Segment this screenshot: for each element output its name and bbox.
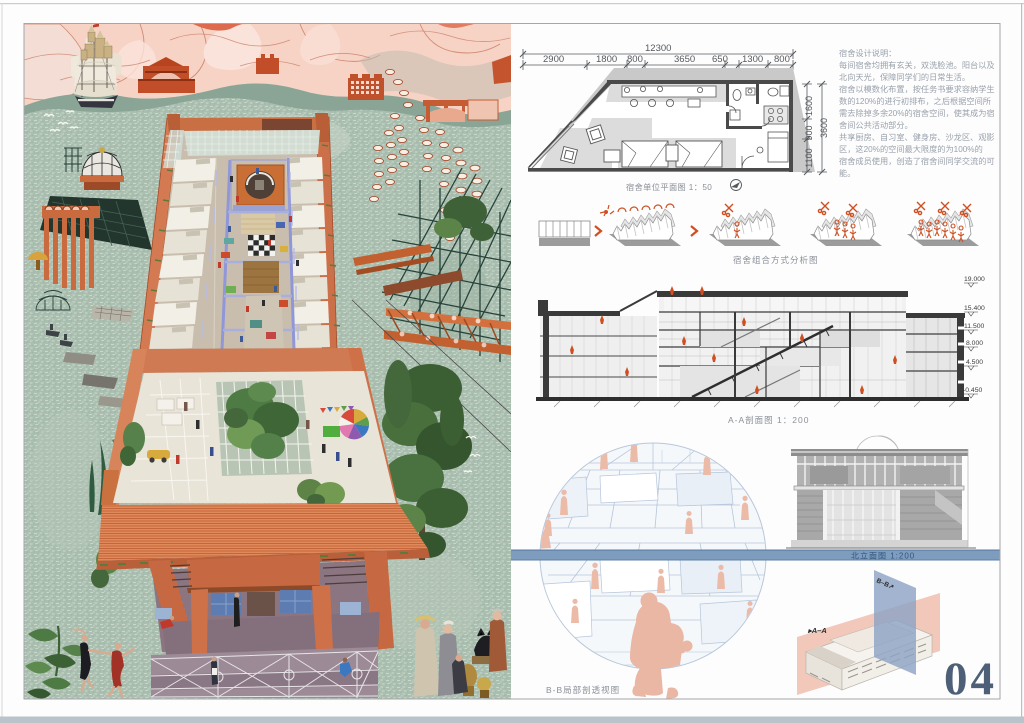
svg-text:▸A–A: ▸A–A (807, 626, 827, 635)
svg-text:19.000: 19.000 (964, 276, 985, 283)
svg-text:12300: 12300 (645, 43, 671, 54)
svg-text:1300: 1300 (742, 54, 763, 65)
svg-text:650: 650 (712, 54, 728, 65)
svg-text:能。: 能。 (839, 168, 855, 178)
svg-text:4.500: 4.500 (966, 359, 983, 366)
svg-text:-0.450: -0.450 (963, 387, 982, 394)
svg-text:宿舍设计说明：: 宿舍设计说明： (839, 48, 896, 58)
svg-text:舍间公共活动部分。: 舍间公共活动部分。 (839, 120, 913, 130)
svg-text:数的120%的进行初排布，之后根据空间所: 数的120%的进行初排布，之后根据空间所 (839, 96, 991, 106)
svg-text:北立面图 1:200: 北立面图 1:200 (851, 551, 915, 561)
svg-text:800: 800 (627, 54, 643, 65)
svg-text:900: 900 (804, 125, 814, 140)
svg-text:3650: 3650 (674, 54, 695, 65)
svg-text:宿舍以模数化布置，按任务书要求容纳学生: 宿舍以模数化布置，按任务书要求容纳学生 (839, 84, 995, 94)
svg-text:15.400: 15.400 (964, 305, 985, 312)
svg-text:1100: 1100 (804, 148, 814, 167)
svg-text:3600: 3600 (819, 118, 829, 138)
svg-text:8.000: 8.000 (966, 340, 983, 347)
svg-text:每间宿舍均拥有玄关，双洗脸池。阳台以及: 每间宿舍均拥有玄关，双洗脸池。阳台以及 (839, 60, 995, 70)
svg-text:宿舍单位平面图 1：50: 宿舍单位平面图 1：50 (626, 182, 712, 192)
svg-text:11.500: 11.500 (964, 323, 985, 330)
svg-text:需去除掉多余20%的宿舍空间，使其成为宿: 需去除掉多余20%的宿舍空间，使其成为宿 (839, 108, 995, 118)
svg-text:区，这20%的空间最大限度的为100%的: 区，这20%的空间最大限度的为100%的 (839, 144, 983, 154)
svg-text:B-B局部剖透视图: B-B局部剖透视图 (546, 685, 620, 695)
svg-text:04: 04 (944, 653, 997, 705)
svg-text:宿舍成员使用，创造了宿舍间同学交流的可: 宿舍成员使用，创造了宿舍间同学交流的可 (839, 156, 995, 166)
svg-text:A-A剖面图 1：200: A-A剖面图 1：200 (728, 415, 809, 425)
svg-text:宿舍组合方式分析图: 宿舍组合方式分析图 (733, 255, 819, 265)
svg-text:北向天光，保障同学们的日常生活。: 北向天光，保障同学们的日常生活。 (839, 72, 970, 82)
svg-text:2900: 2900 (543, 54, 564, 65)
svg-text:800: 800 (774, 54, 790, 65)
svg-text:共享厨房、自习室、健身房、沙龙区、观影: 共享厨房、自习室、健身房、沙龙区、观影 (839, 132, 995, 142)
svg-text:1600: 1600 (804, 96, 814, 116)
svg-text:1800: 1800 (596, 54, 617, 65)
